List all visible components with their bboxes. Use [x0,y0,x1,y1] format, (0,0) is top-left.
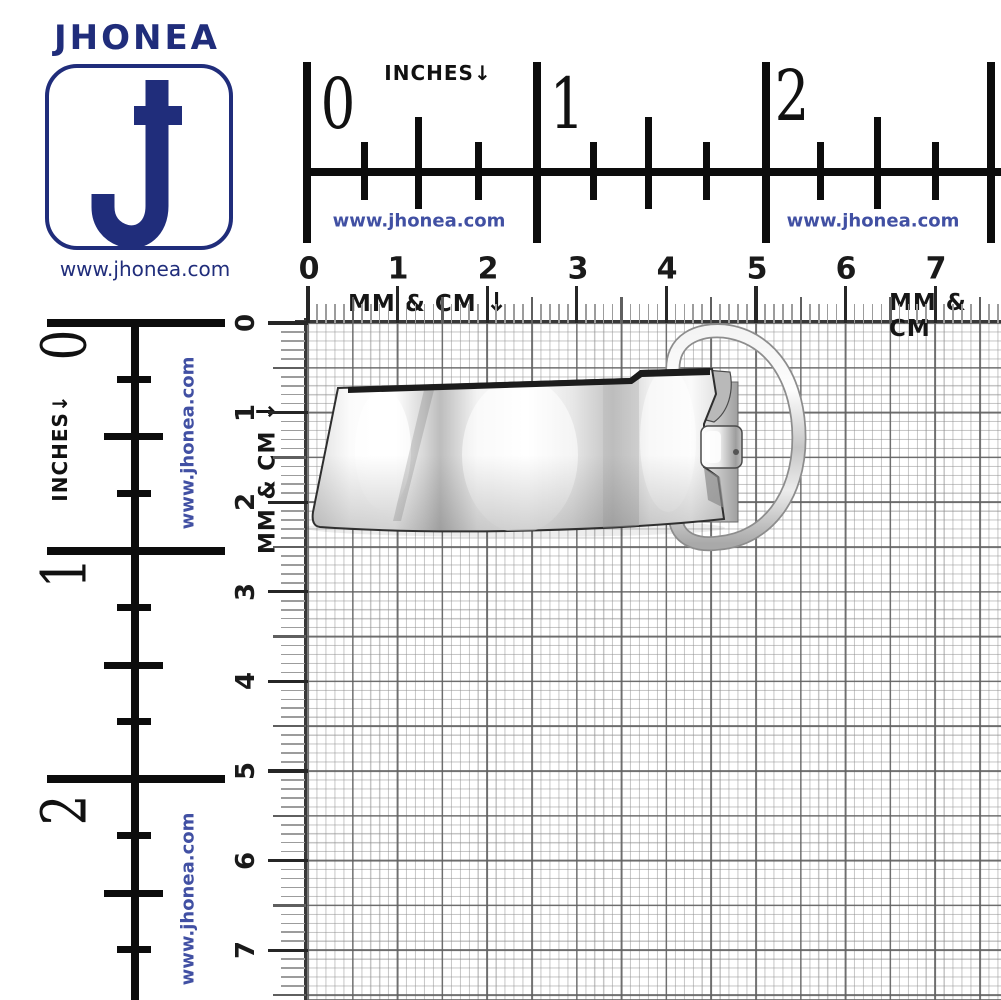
ruler-tick [899,304,901,323]
ruler-tick [281,492,305,494]
ruler-tick [273,546,306,548]
ruler-tick [273,725,306,727]
cm-number: 4 [657,252,678,287]
ruler-tick [415,304,417,323]
ruler-tick [281,349,305,351]
ruler-tick [513,304,515,323]
ruler-tick [791,304,793,323]
ruler-tick [746,304,748,323]
ruler-tick [818,304,820,323]
ruler-tick [406,304,408,323]
ruler-tick [881,304,883,323]
ruler-tick [281,851,305,853]
ruler-tick [281,600,305,602]
ruler-tick [273,635,306,637]
ruler-tick-major [303,62,311,243]
ruler-tick [343,304,345,323]
ruler-tick [281,618,305,620]
watermark-url: www.jhonea.com [333,211,506,232]
ruler-tick [281,475,305,477]
ruler-tick [268,590,308,593]
ruler-tick [460,304,462,323]
ruler-tick [854,304,856,323]
ruler-tick [522,304,524,323]
ruler-tick [549,304,551,323]
ruler-tick [281,510,305,512]
brand-name: JHONEA [54,18,220,58]
ruler-tick [612,304,614,323]
ruler-tick [916,304,918,323]
ruler-tick [281,869,305,871]
ruler-tick [504,304,506,323]
ruler-tick [540,304,542,323]
ruler-tick-quarter [932,142,939,200]
ruler-tick-quarter [117,376,151,383]
ruler-tick [281,645,305,647]
ruler-tick-quarter [703,142,710,200]
ruler-tick [370,304,372,323]
ruler-tick [728,304,730,323]
ruler-tick [594,304,596,323]
ruler-tick [281,466,305,468]
ruler-tick [531,297,533,323]
ruler-tick [620,297,622,323]
ruler-tick [281,421,305,423]
ruler-tick [281,394,305,396]
ruler-tick [281,582,305,584]
ruler-tick-major [987,62,995,243]
ruler-tick [273,994,306,996]
ruler-tick [281,779,305,781]
ruler-tick [281,403,305,405]
ruler-tick [800,297,802,323]
ruler-tick-quarter [361,142,368,200]
product-photo-clip-with-d-ring [280,305,820,575]
ruler-tick [281,923,305,925]
ruler-tick [281,358,305,360]
ruler-tick-half [104,662,163,669]
ruler-tick [281,967,305,969]
ruler-tick-quarter [475,142,482,200]
letter-j-glyph [49,68,229,246]
inch-number: 1 [28,558,101,589]
ruler-tick-major [47,319,225,327]
ruler-tick [567,304,569,323]
cm-number: 7 [926,252,947,287]
inches-label: INCHES↓ [48,394,72,501]
watermark-url: www.jhonea.com [178,813,199,986]
ruler-tick [657,304,659,323]
ruler-tick [281,824,305,826]
ruler-tick [273,367,306,369]
ruler-tick [424,304,426,323]
ruler-tick-half [104,433,163,440]
ruler-tick [558,304,560,323]
ruler-tick [281,528,305,530]
ruler-tick [639,304,641,323]
ruler-tick [281,385,305,387]
ruler-tick [648,304,650,323]
ruler-tick [433,304,435,323]
ruler-tick-half [874,117,881,209]
ruler-tick [692,304,694,323]
ruler-tick [844,286,847,323]
cm-number: 5 [231,762,261,780]
ruler-tick [281,716,305,718]
ruler-tick [268,321,308,324]
ruler-tick [889,297,891,323]
ruler-tick [281,564,305,566]
clip-body [311,368,724,535]
ruler-tick [396,286,399,323]
brand-j-icon [45,64,233,250]
cm-number: 6 [836,252,857,287]
ruler-tick [281,940,305,942]
ruler-tick [988,304,990,323]
ruler-tick [281,690,305,692]
brand-website: www.jhonea.com [60,257,230,281]
ruler-tick [268,769,308,772]
ruler-tick [281,331,305,333]
ruler-tick [836,304,838,323]
ruler-tick [782,304,784,323]
ruler-tick [943,304,945,323]
ruler-tick [952,304,954,323]
ruler-tick [306,286,309,323]
ruler-tick [379,304,381,323]
ruler-tick [495,304,497,323]
ruler-tick [863,304,865,323]
ruler-tick [451,304,453,323]
ruler-tick-major [762,62,770,243]
ruler-tick [710,297,712,323]
ruler-tick [281,887,305,889]
ruler-tick-quarter [817,142,824,200]
ruler-tick [281,519,305,521]
ruler-tick [281,761,305,763]
ruler-tick [268,859,308,862]
ruler-tick-major [533,62,541,243]
ruler-tick [441,297,443,323]
mmcm-label: MM & CM ↓ [252,400,281,554]
cm-number: 3 [568,252,589,287]
ruler-tick [737,304,739,323]
cm-number: 6 [231,852,261,870]
ruler-tick [630,304,632,323]
ruler-tick [281,537,305,539]
ruler-tick [316,304,318,323]
cm-number: 2 [478,252,499,287]
ruler-tick [575,286,578,323]
ruler-tick-quarter [117,946,151,953]
ruler-tick [764,304,766,323]
ruler-tick [281,609,305,611]
ruler-tick [281,376,305,378]
ruler-tick [281,797,305,799]
inches-label: INCHES↓ [384,61,491,85]
ruler-tick [281,878,305,880]
measurement-template-stage: JHONEA www.jhonea.com 0 1 2 INCHES↓ www.… [0,0,1001,1000]
ruler-tick [281,958,305,960]
ruler-tick [273,904,306,906]
ruler-tick [268,949,308,952]
ruler-tick [603,304,605,323]
ruler-tick [268,501,308,504]
ruler-tick [701,304,703,323]
ruler-tick [925,304,927,323]
cm-number: 5 [747,252,768,287]
ruler-tick [585,304,587,323]
cm-number: 0 [231,314,261,332]
ruler-tick [281,627,305,629]
ruler-tick [754,286,757,323]
ruler-tick [281,654,305,656]
ruler-tick [281,430,305,432]
ruler-tick [268,411,308,414]
ruler-tick [352,297,354,323]
ruler-tick [961,304,963,323]
ruler-tick [997,304,999,323]
ruler-tick [281,985,305,987]
ruler-tick-half [104,890,163,897]
ruler-tick [684,304,686,323]
ruler-tick [281,340,305,342]
ruler-tick [486,286,489,323]
ruler-tick [388,304,390,323]
ruler-tick [281,806,305,808]
inch-number: 0 [28,330,101,361]
mmcm-label-right: MM & CM [889,290,1001,342]
ruler-tick [827,304,829,323]
ruler-tick [281,573,305,575]
ruler-tick [268,680,308,683]
watermark-url: www.jhonea.com [178,357,199,530]
inch-number: 1 [550,63,585,145]
inch-number: 0 [321,63,356,145]
ruler-tick [281,707,305,709]
arrow-icon: ↓ [48,394,72,412]
ruler-tick-quarter [117,490,151,497]
ruler-tick [281,448,305,450]
ruler-tick [979,297,981,323]
cm-number: 0 [299,252,320,287]
ruler-tick [273,456,306,458]
ruler-tick [281,555,305,557]
ruler-tick-major [47,547,225,555]
ruler-tick-half [415,117,422,209]
ruler-tick [281,896,305,898]
ruler-tick [281,663,305,665]
ruler-tick [872,304,874,323]
cm-number: 4 [231,672,261,690]
ruler-tick [719,304,721,323]
cm-number: 3 [231,583,261,601]
inch-number: 2 [775,55,810,137]
ruler-tick [281,672,305,674]
ruler-tick [281,699,305,701]
ruler-tick [281,931,305,933]
ruler-tick [934,286,937,323]
ruler-tick [361,304,363,323]
ruler-tick-half [645,117,652,209]
ruler-tick [281,483,305,485]
ruler-tick [281,439,305,441]
ruler-tick-quarter [590,142,597,200]
ruler-line [303,168,1001,176]
ruler-tick [468,304,470,323]
cm-number: 1 [388,252,409,287]
cm-number: 7 [231,941,261,959]
ruler-tick-quarter [117,832,151,839]
ruler-tick [281,976,305,978]
ruler-tick [773,304,775,323]
ruler-tick [281,914,305,916]
down-arrow-icon: ↓ [474,61,492,85]
ruler-tick [281,752,305,754]
ruler-tick [281,743,305,745]
ruler-tick-quarter [117,718,151,725]
ruler-tick [281,734,305,736]
ruler-tick [675,304,677,323]
ruler-tick [970,304,972,323]
inch-number: 2 [28,795,101,826]
ruler-tick [281,842,305,844]
watermark-url: www.jhonea.com [787,211,960,232]
ruler-tick-major [47,775,225,783]
ruler-tick [334,304,336,323]
ruler-tick [477,304,479,323]
ruler-tick [281,788,305,790]
ruler-tick [281,833,305,835]
ruler-tick [665,286,668,323]
ruler-tick [273,815,306,817]
ruler-tick [908,304,910,323]
ruler-tick [325,304,327,323]
ruler-tick-quarter [117,604,151,611]
ruler-tick [809,304,811,323]
